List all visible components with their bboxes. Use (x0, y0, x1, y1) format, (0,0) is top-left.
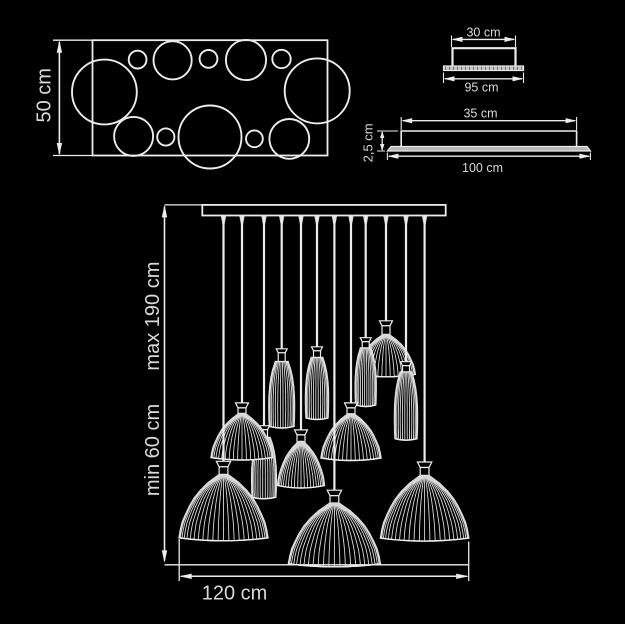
svg-text:35 cm: 35 cm (463, 107, 497, 121)
svg-text:95 cm: 95 cm (464, 81, 498, 95)
svg-text:120 cm: 120 cm (202, 583, 268, 605)
svg-text:max 190 cm: max 190 cm (142, 262, 164, 371)
svg-text:min 60 cm: min 60 cm (142, 404, 164, 496)
svg-text:100 cm: 100 cm (462, 161, 503, 175)
svg-text:2,5 cm: 2,5 cm (360, 123, 375, 162)
svg-text:50 cm: 50 cm (33, 68, 55, 122)
svg-text:30 cm: 30 cm (466, 26, 500, 40)
